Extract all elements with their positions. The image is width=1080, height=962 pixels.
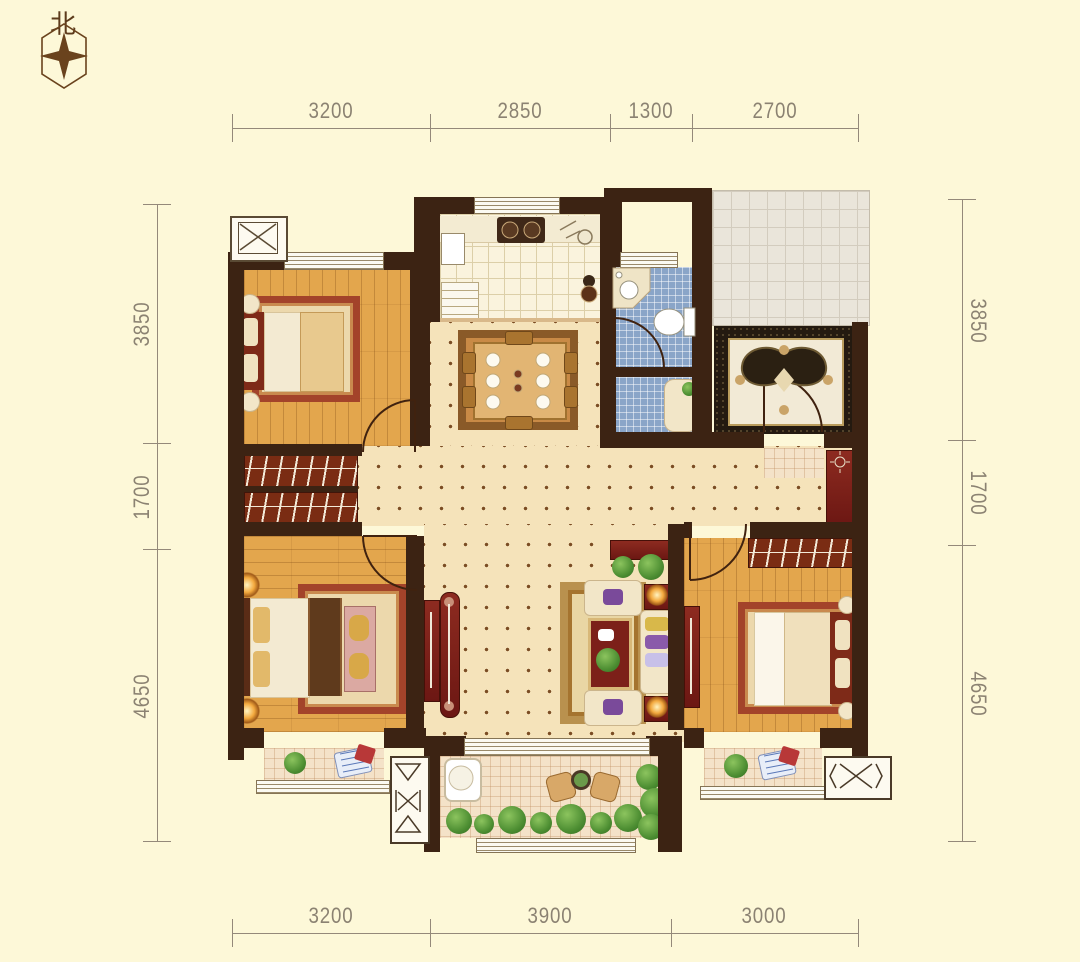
dim-tick — [143, 204, 171, 205]
kettle-icon — [581, 275, 597, 302]
dim-label-bottom-3: 3000 — [726, 903, 803, 929]
dim-tick — [610, 114, 611, 142]
toilet — [654, 308, 695, 336]
dim-label-top-1: 3200 — [293, 98, 370, 124]
dim-tick — [430, 114, 431, 142]
plan-detail-overlay — [0, 0, 1080, 962]
dimension-line-bottom — [232, 933, 859, 934]
dim-tick — [858, 919, 859, 947]
compass-icon — [20, 18, 130, 118]
dim-tick — [143, 549, 171, 550]
entry-rug-damask-motif — [735, 345, 833, 415]
dim-label-right-3: 4650 — [965, 656, 991, 733]
dim-label-left-2: 1700 — [129, 459, 155, 536]
lounge-cushion-left — [334, 744, 376, 779]
dim-tick — [232, 919, 233, 947]
dimension-line-right — [962, 199, 963, 841]
dim-label-right-1: 3850 — [965, 283, 991, 360]
dim-tick — [143, 841, 171, 842]
door-bedroom-left — [363, 400, 415, 452]
dim-label-bottom-1: 3200 — [293, 903, 370, 929]
dim-label-left-3: 4650 — [129, 658, 155, 735]
dim-label-top-2: 2850 — [482, 98, 559, 124]
dim-tick — [948, 440, 976, 441]
dim-tick — [430, 919, 431, 947]
floorplan-page: { "north_label": "北", "dimensions": { "t… — [0, 0, 1080, 962]
dimension-line-top — [232, 128, 859, 129]
dim-label-bottom-2: 3900 — [512, 903, 589, 929]
compass-star-icon — [40, 32, 88, 80]
dim-tick — [692, 114, 693, 142]
stove-cooktop — [497, 217, 545, 243]
dim-tick — [948, 545, 976, 546]
dim-tick — [948, 199, 976, 200]
flue-symbol-right-icon — [830, 764, 882, 788]
corner-vanity-sink — [613, 268, 650, 308]
tv-screen-line — [431, 604, 691, 704]
dim-tick — [143, 443, 171, 444]
dim-label-top-3: 1300 — [613, 98, 690, 124]
lounge-cushion-right — [758, 746, 800, 781]
dim-tick — [232, 114, 233, 142]
flue-symbol-left-icon — [396, 764, 420, 832]
door-bedroom-right — [690, 524, 746, 580]
dim-tick — [858, 114, 859, 142]
dim-tick — [671, 919, 672, 947]
dimension-line-left — [157, 204, 158, 841]
dim-label-top-4: 2700 — [737, 98, 814, 124]
door-bedroom-master — [363, 536, 417, 590]
washbasin-drum-icon — [449, 766, 473, 790]
dining-place-settings — [486, 353, 550, 409]
balcony-table-chairs — [545, 770, 621, 803]
dim-label-right-2: 1700 — [965, 455, 991, 532]
shoe-cabinet-flower-icon — [830, 451, 850, 473]
kitchen-utensils-icon — [560, 221, 592, 244]
dim-tick — [948, 841, 976, 842]
dim-label-left-1: 3850 — [129, 286, 155, 363]
elevator-cross-icon — [240, 224, 276, 250]
